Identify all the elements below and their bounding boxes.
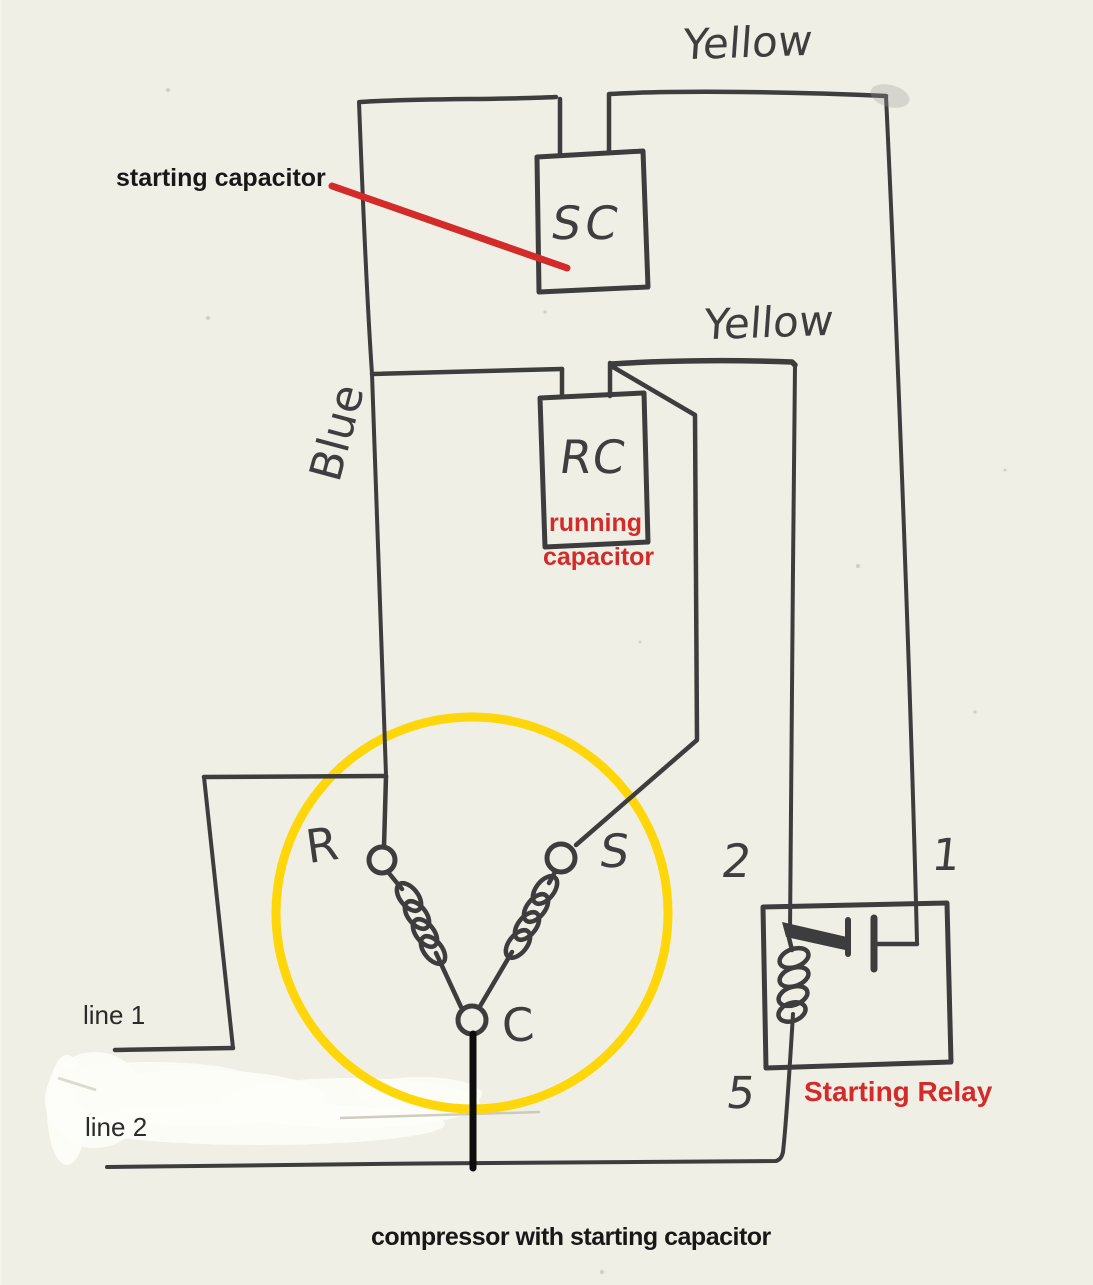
wire-line2 <box>107 1152 783 1167</box>
diagram-caption: compressor with starting capacitor <box>371 1225 771 1250</box>
relay-contact <box>848 918 917 969</box>
relay-coil <box>776 938 811 1152</box>
sc-box-label: SC <box>548 200 625 246</box>
wire-line1 <box>115 776 386 1050</box>
terminal-c-label: C <box>500 1001 535 1049</box>
rc-box-label: RC <box>557 434 631 480</box>
wire-label-yellow-mid: Yellow <box>703 300 835 347</box>
relay-terminal-1-label: 1 <box>930 834 963 878</box>
line1-label: line 1 <box>83 1002 145 1028</box>
starting-capacitor-label: starting capacitor <box>116 166 326 191</box>
scanned-wiring-diagram: starting capacitor Yellow SC Yellow Blue… <box>0 0 1093 1285</box>
running-capacitor-label-line2: capacitor <box>543 545 654 570</box>
terminal-r-label: R <box>303 820 341 870</box>
line2-label: line 2 <box>85 1114 147 1140</box>
start-winding-coil <box>479 872 562 1008</box>
wire-yellow-mid <box>610 361 795 932</box>
wire-label-yellow-top: Yellow <box>682 20 814 67</box>
starting-relay-label: Starting Relay <box>804 1078 992 1106</box>
run-winding-coil <box>388 872 461 1007</box>
running-capacitor-label-line1: running <box>549 511 642 536</box>
terminal-r-circle <box>369 847 395 873</box>
whiteout-smear <box>45 1052 482 1165</box>
terminal-s-circle <box>547 844 575 872</box>
terminal-c-circle <box>458 1006 486 1034</box>
pencil-smudge <box>868 80 912 112</box>
